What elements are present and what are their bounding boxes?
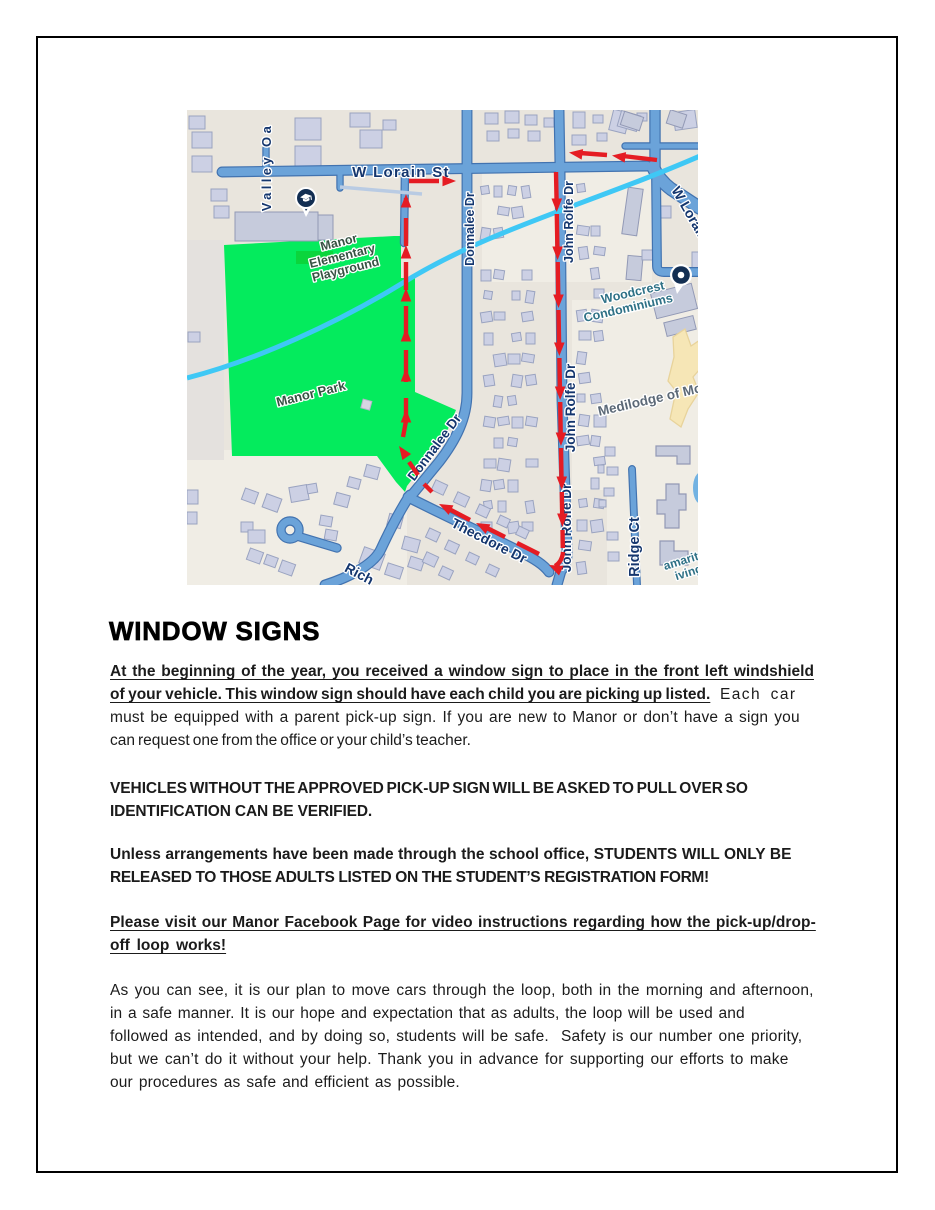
svg-text:W Lorain St: W Lorain St — [352, 164, 450, 181]
svg-text:Donnalee Dr: Donnalee Dr — [463, 192, 477, 266]
svg-text:Ridge Ct: Ridge Ct — [627, 517, 643, 577]
svg-text:Valley Oa: Valley Oa — [259, 123, 274, 211]
svg-text:John Rolfe Dr: John Rolfe Dr — [562, 181, 576, 263]
svg-text:John Rolfe Dr: John Rolfe Dr — [563, 363, 578, 452]
